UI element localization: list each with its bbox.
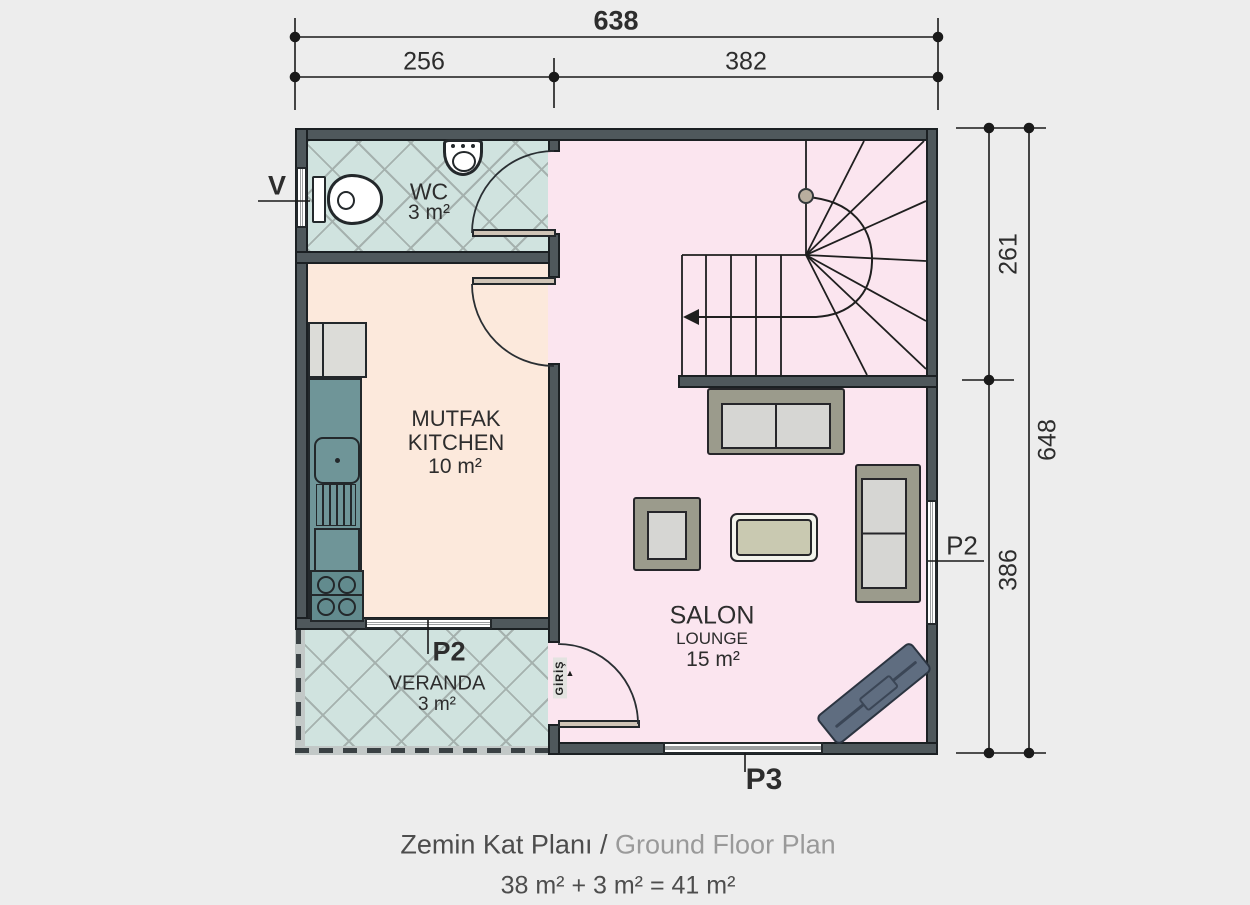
salon-area: 15 m² xyxy=(686,648,740,672)
dim-right-lower: 386 xyxy=(995,549,1024,591)
entrance-door-arc xyxy=(558,644,638,724)
plan-caption-area-sum: 38 m² + 3 m² = 41 m² xyxy=(501,872,736,901)
veranda-area: 3 m² xyxy=(418,694,456,716)
dim-top-total: 638 xyxy=(593,6,638,37)
stairs xyxy=(682,140,926,376)
salon-name-en: LOUNGE xyxy=(676,629,748,649)
label-window-v: V xyxy=(268,171,286,202)
salon-name-tr: SALON xyxy=(670,602,755,631)
label-p2-veranda: P2 xyxy=(432,637,465,668)
stair-start-dot xyxy=(799,189,813,203)
floor-plan: 638 256 382 261 386 648 V P2 P2 P3 GİRİŞ… xyxy=(0,0,1250,905)
caption-title-turkish: Zemin Kat Planı / xyxy=(400,830,607,860)
stair-direction-arrow xyxy=(683,309,699,325)
label-p3: P3 xyxy=(746,763,783,797)
caption-title-english: Ground Floor Plan xyxy=(615,830,836,860)
dim-right-upper: 261 xyxy=(995,233,1024,275)
kitchen-name-en: KITCHEN xyxy=(408,430,505,456)
label-p2-salon: P2 xyxy=(946,531,978,562)
label-leaders xyxy=(258,201,984,772)
kitchen-area: 10 m² xyxy=(428,455,482,479)
wc-door-arc xyxy=(472,151,554,233)
dimension-lines xyxy=(291,18,1047,758)
plan-caption-title: Zemin Kat Planı / Ground Floor Plan xyxy=(400,830,835,861)
kitchen-door-arc xyxy=(472,284,554,366)
plan-linework xyxy=(0,0,1250,905)
dim-top-left: 256 xyxy=(403,48,445,77)
dim-top-right: 382 xyxy=(725,48,767,77)
label-entrance: GİRİŞ xyxy=(553,658,567,699)
dim-right-total: 648 xyxy=(1034,419,1063,461)
wc-room-area: 3 m² xyxy=(408,201,450,225)
entrance-direction-arrow: ▲ xyxy=(566,668,575,678)
kitchen-name-tr: MUTFAK xyxy=(411,406,500,432)
veranda-name: VERANDA xyxy=(389,673,486,696)
